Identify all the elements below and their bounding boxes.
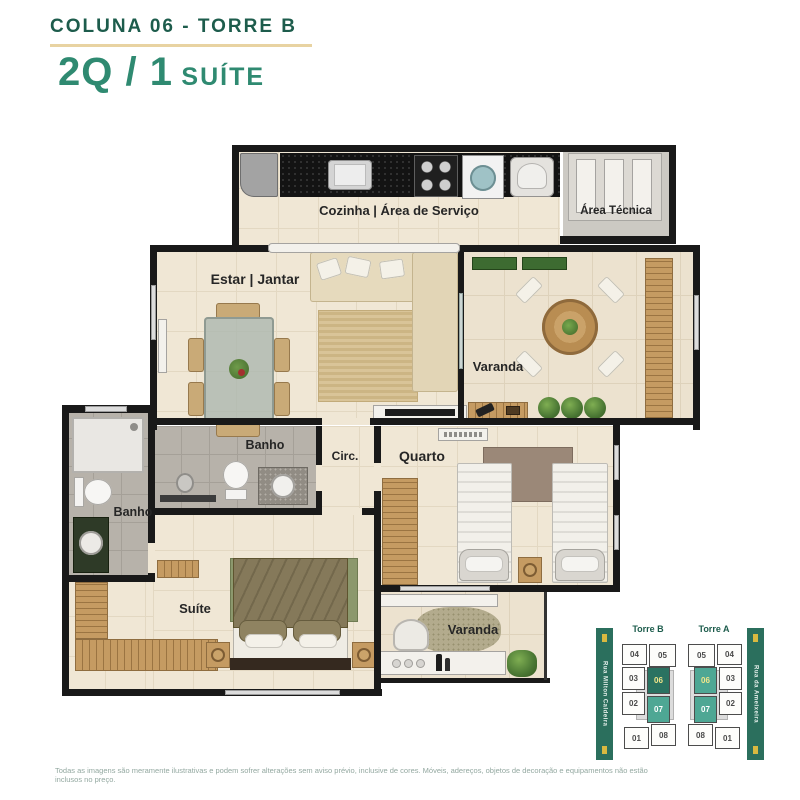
road-marking — [753, 746, 758, 754]
bottle — [445, 658, 450, 671]
suite-dresser — [157, 560, 199, 578]
unit-cell: 03 — [719, 667, 742, 690]
door-opening-bathroom — [316, 465, 322, 491]
shower-shelf — [160, 495, 216, 502]
wall-segment — [232, 145, 239, 252]
ac-vents — [444, 432, 482, 437]
washing-machine — [462, 155, 504, 199]
wall-segment — [62, 575, 155, 582]
tv — [385, 409, 455, 416]
sofa-pillow — [344, 256, 371, 279]
tower-b: 04 05 03 06 02 07 01 08 — [622, 638, 676, 752]
plate — [404, 659, 413, 668]
nightstand — [518, 557, 542, 583]
unit-cell: 01 — [624, 727, 649, 749]
unit-cell: 08 — [651, 724, 676, 746]
site-map: Rua Milton Caldeira Rua da Ameixeira Tor… — [596, 624, 764, 764]
suite-nightstand — [352, 642, 376, 668]
street-bar-right: Rua da Ameixeira — [747, 628, 764, 760]
wall-segment — [62, 405, 69, 696]
wall-segment — [669, 145, 676, 243]
dining-chair — [188, 382, 204, 416]
lamp — [357, 648, 371, 662]
planter-box — [522, 257, 567, 270]
bed-1-pillow — [459, 549, 509, 581]
bath-counter — [73, 517, 109, 573]
grill-tray — [506, 406, 520, 415]
street-name-right: Rua da Ameixeira — [747, 628, 764, 760]
suite-wardrobe-top — [75, 582, 108, 639]
window — [400, 586, 490, 591]
plan-type-main: 2Q / 1 — [58, 50, 173, 94]
suite-bed — [233, 558, 348, 670]
social-bath-label: Banho — [220, 438, 310, 452]
plate — [392, 659, 401, 668]
balcony-plant — [507, 650, 537, 677]
lamp — [211, 648, 225, 662]
suite-nightstand — [206, 642, 230, 668]
unit-cell: 04 — [622, 644, 647, 665]
balcony-bench — [645, 258, 673, 418]
air-conditioner — [438, 428, 488, 441]
living-rug — [318, 310, 418, 402]
door-opening-bedroom — [374, 463, 381, 491]
unit-cell: 03 — [622, 667, 645, 690]
technical-label: Área Técnica — [563, 205, 669, 217]
opening-circulation — [322, 418, 370, 425]
centerpiece-flower — [238, 369, 245, 376]
dining-table — [204, 317, 274, 421]
kitchen-label: Cozinha | Área de Serviço — [238, 203, 560, 218]
plan-type-sub: SUÍTE — [181, 63, 265, 91]
plate — [416, 659, 425, 668]
unit-cell-highlight: 07 — [647, 696, 670, 723]
sliding-glass-door — [459, 293, 463, 369]
wall-segment — [560, 236, 676, 244]
pillow — [561, 556, 599, 572]
suite-pillow-white — [245, 634, 283, 648]
bedroom-wardrobe — [382, 478, 418, 585]
laundry-tub — [510, 157, 554, 197]
grill-utensils — [475, 403, 495, 418]
unit-cell: 08 — [688, 724, 713, 746]
street-bar-left: Rua Milton Caldeira — [596, 628, 613, 760]
table-plant — [562, 319, 578, 335]
door-opening-suite — [322, 508, 362, 515]
lamp — [523, 563, 537, 577]
window — [614, 515, 619, 550]
shower-tray — [72, 417, 144, 473]
circulation-label: Circ. — [315, 449, 375, 463]
door-opening-suite-bath — [148, 543, 155, 573]
page-title: COLUNA 06 - TORRE B — [50, 16, 297, 38]
sink-basin — [334, 164, 366, 186]
suite-label: Suíte — [155, 601, 235, 616]
headboard — [230, 658, 351, 670]
floor-plan-page: COLUNA 06 - TORRE B 2Q / 1 SUÍTE — [0, 0, 800, 800]
dining-chair — [188, 338, 204, 372]
vanity-sink — [271, 474, 295, 498]
unit-cell-highlight: 07 — [694, 696, 717, 723]
suite-bath-label: Banho — [102, 505, 164, 519]
wall-segment — [150, 245, 242, 252]
grill-counter — [468, 402, 528, 419]
bed-2-pillow — [555, 549, 605, 581]
toilet-tank — [225, 489, 247, 500]
sofa-pillow — [379, 258, 405, 279]
kitchen-sink — [328, 160, 372, 190]
round-table — [542, 299, 598, 355]
balcony-ledge — [380, 594, 498, 607]
tower-a: 05 04 06 03 07 02 08 01 — [688, 638, 742, 752]
street-name-left: Rua Milton Caldeira — [596, 628, 613, 760]
shrub — [538, 397, 560, 419]
unit-cell: 05 — [688, 644, 715, 667]
circulation-floor — [319, 426, 376, 510]
planter-box — [472, 257, 517, 270]
tower-b-label: Torre B — [620, 624, 676, 634]
unit-cell: 01 — [715, 727, 740, 749]
window — [694, 295, 699, 350]
window — [85, 406, 127, 412]
floor-plan: Cozinha | Área de Serviço Área Técnica E… — [60, 145, 710, 701]
toilet-tank — [74, 477, 84, 507]
refrigerator — [240, 153, 278, 197]
balcony-railing — [544, 592, 547, 680]
suite-wardrobe-side — [75, 639, 218, 671]
unit-cell-selected: 06 — [647, 667, 670, 694]
disclaimer-text: Todas as imagens são meramente ilustrati… — [55, 766, 655, 784]
toilet — [84, 479, 112, 505]
vanity-counter — [258, 467, 308, 505]
duvet — [233, 558, 348, 628]
shower-fixture — [176, 473, 194, 493]
pillow — [465, 556, 503, 572]
tower-a-label: Torre A — [686, 624, 742, 634]
lounge-chair — [393, 619, 429, 651]
living-label: Estar | Jantar — [175, 271, 335, 287]
wall-segment — [458, 245, 700, 252]
bottle — [436, 654, 442, 671]
wall-segment — [374, 678, 550, 683]
tub-basin — [517, 163, 547, 189]
kitchen-pass-counter — [268, 243, 460, 253]
wall-segment — [232, 145, 676, 152]
window — [151, 285, 156, 340]
unit-cell: 02 — [622, 692, 645, 715]
unit-cell: 04 — [717, 644, 742, 665]
suite-pillow-white — [299, 634, 337, 648]
bedroom-label: Quarto — [382, 448, 462, 464]
unit-cell: 05 — [649, 644, 676, 667]
cooktop-stove — [414, 155, 458, 197]
window — [614, 445, 619, 480]
dining-chair — [274, 338, 290, 372]
washer-door — [470, 165, 496, 191]
unit-cell: 02 — [719, 692, 742, 715]
balcony-counter — [380, 651, 506, 675]
shrub — [561, 397, 583, 419]
title-underline — [50, 44, 312, 47]
plan-type: 2Q / 1 SUÍTE — [58, 50, 265, 95]
bath-sink — [79, 531, 103, 555]
wall-unit — [158, 319, 167, 373]
unit-cell-highlight: 06 — [694, 667, 717, 694]
balcony-label: Varanda — [462, 359, 534, 374]
suite-balcony-label: Varanda — [437, 622, 509, 637]
shower-head — [130, 423, 138, 431]
shrub — [584, 397, 606, 419]
sofa-chaise — [412, 252, 458, 392]
road-marking — [602, 746, 607, 754]
toilet — [223, 461, 249, 489]
dining-chair — [274, 382, 290, 416]
window — [225, 690, 340, 695]
